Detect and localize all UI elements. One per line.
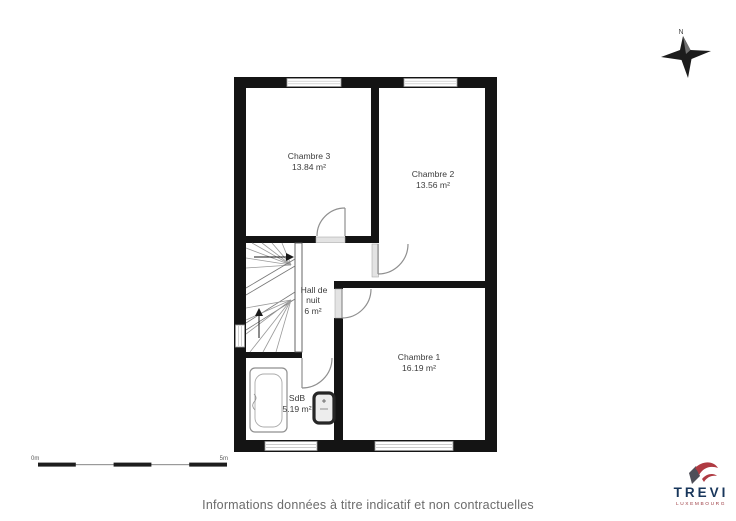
door-chambre1 — [342, 289, 371, 318]
threshold-chambre3 — [316, 237, 345, 243]
hall-area: 6 m² — [304, 306, 321, 316]
chambre3-name: Chambre 3 — [288, 151, 331, 161]
disclaimer-text: Informations données à titre indicatif e… — [202, 498, 534, 512]
north-compass: N — [661, 29, 711, 78]
door-sdb — [302, 358, 332, 388]
wall-hall-chambre1 — [334, 318, 343, 440]
trevi-logo: TREVI LUXEMBOURG — [674, 462, 729, 507]
room-label-hall: Hall de nuit 6 m² — [301, 285, 328, 316]
door-thresholds — [316, 237, 379, 318]
chambre1-name: Chambre 1 — [398, 352, 441, 362]
scale-bar: 0m 5m — [31, 456, 228, 467]
room-label-chambre3: Chambre 3 13.84 m² — [288, 151, 331, 172]
door-chambre3 — [317, 208, 345, 236]
wall-chambre1-top — [338, 281, 485, 288]
wall-outer-left — [234, 77, 246, 452]
wall-chambre1-stub — [334, 281, 343, 289]
chambre2-name: Chambre 2 — [412, 169, 455, 179]
wall-hall-sdb — [246, 352, 302, 358]
door-chambre2 — [378, 244, 408, 274]
trevi-brand-text: TREVI — [674, 485, 729, 500]
stair-partition-wall — [295, 243, 302, 352]
hall-name-line2: nuit — [306, 295, 320, 305]
stair-arrow-low-flight — [255, 308, 263, 338]
room-label-chambre2: Chambre 2 13.56 m² — [412, 169, 455, 190]
wall-chambre3-chambre2 — [371, 85, 379, 243]
wall-chambre3-hall-right — [345, 236, 379, 243]
washbasin — [314, 393, 334, 423]
wall-outer-right — [485, 77, 497, 452]
window-left-wall — [236, 325, 245, 347]
trevi-logo-icon — [689, 462, 718, 484]
trevi-subtitle-text: LUXEMBOURG — [676, 501, 726, 507]
chambre2-area: 13.56 m² — [416, 180, 450, 190]
sdb-name: SdB — [289, 393, 306, 403]
wall-chambre3-hall-left — [246, 236, 316, 243]
chambre3-area: 13.84 m² — [292, 162, 326, 172]
wall-outer-top — [234, 77, 497, 88]
hall-name-line1: Hall de — [301, 285, 328, 295]
scale-segment-1 — [38, 463, 76, 467]
window-bottom-right — [375, 442, 453, 451]
window-top-left — [287, 79, 341, 87]
floor-plan-drawing: Chambre 3 13.84 m² Chambre 2 13.56 m² Ch… — [0, 0, 736, 521]
scale-segment-2 — [114, 463, 152, 467]
window-bottom-left — [265, 442, 317, 451]
scale-end-label: 5m — [220, 456, 228, 462]
floor-plan-page: Chambre 3 13.84 m² Chambre 2 13.56 m² Ch… — [0, 0, 736, 521]
scale-start-label: 0m — [31, 456, 39, 462]
bathtub — [250, 368, 287, 432]
threshold-chambre1 — [335, 289, 342, 318]
room-label-chambre1: Chambre 1 16.19 m² — [398, 352, 441, 373]
chambre1-area: 16.19 m² — [402, 363, 436, 373]
sdb-area: 5.19 m² — [282, 404, 311, 414]
scale-segment-3 — [189, 463, 227, 467]
north-label: N — [678, 29, 683, 36]
window-top-right — [404, 79, 457, 87]
